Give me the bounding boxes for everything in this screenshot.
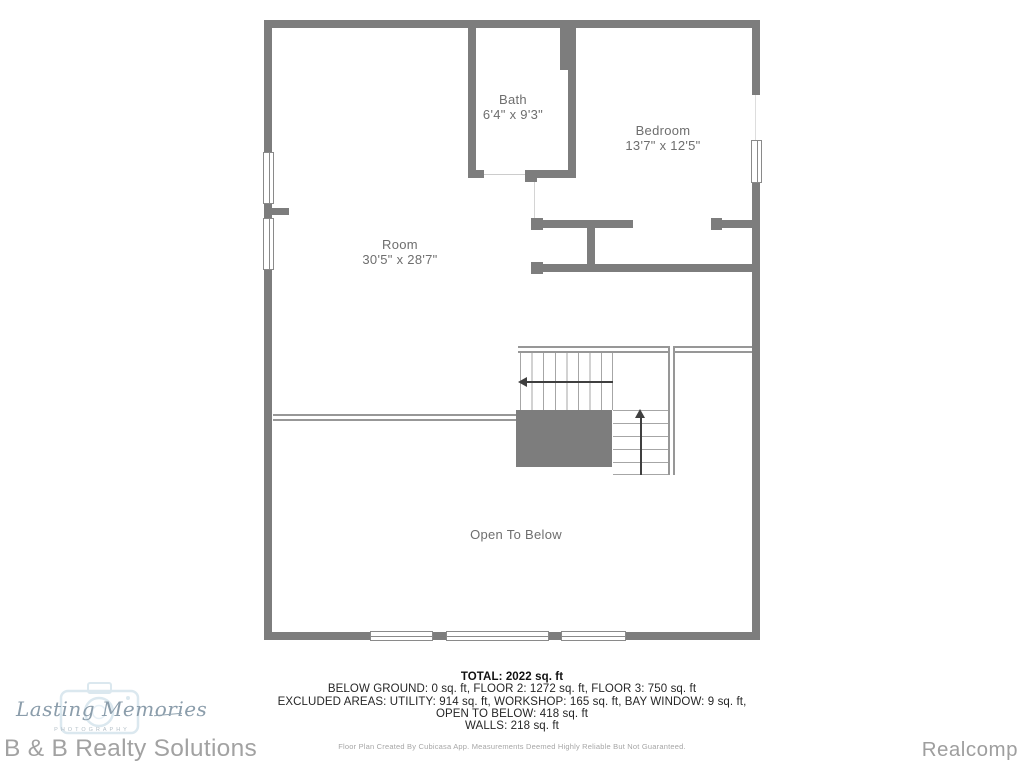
wall-hall-lower-cap xyxy=(531,262,543,274)
stair-rail-right xyxy=(668,346,675,475)
window-bottom-center xyxy=(446,631,549,641)
window-bottom-left xyxy=(370,631,433,641)
room-label-bath: Bath 6'4" x 9'3" xyxy=(483,92,543,122)
window-pane xyxy=(757,141,758,182)
wall-bath-left-foot xyxy=(468,170,484,178)
wall-bedroom-stub-cap xyxy=(711,218,722,230)
window-pane xyxy=(269,219,270,269)
wall-hall-upper xyxy=(533,220,633,228)
floor-plan: Bath 6'4" x 9'3" Bedroom 13'7" x 12'5" R… xyxy=(0,0,1024,768)
open-to-below-label: Open To Below xyxy=(470,527,562,542)
stair-rail-top xyxy=(518,346,752,353)
brokerage-name: B & B Realty Solutions xyxy=(4,735,257,763)
bath-door-threshold xyxy=(484,174,525,175)
wall-hall-vertical xyxy=(587,228,595,265)
window-pane xyxy=(371,636,432,637)
wall-right-opening-line xyxy=(755,95,756,141)
window-right xyxy=(751,140,762,183)
stair-rail-left xyxy=(273,414,516,421)
wall-bath-bottom-cap xyxy=(525,170,537,182)
window-pane xyxy=(562,636,625,637)
summary-breakdown: BELOW GROUND: 0 sq. ft, FLOOR 2: 1272 sq… xyxy=(0,683,1024,695)
photographer-logo-script: Lasting Memories xyxy=(16,697,176,721)
room-label-room: Room 30'5" x 28'7" xyxy=(362,237,437,267)
window-pane xyxy=(447,636,548,637)
wall-outer-top xyxy=(264,20,760,28)
photographer-logo-subtext: PHOTOGRAPHY xyxy=(16,727,168,733)
summary-total: TOTAL: 2022 sq. ft xyxy=(0,671,1024,683)
bedroom-doorway-line xyxy=(534,182,535,220)
stair-arrow-up-line xyxy=(640,417,642,475)
stair-landing xyxy=(516,410,612,467)
wall-hall-lower xyxy=(533,264,752,272)
wall-hall-upper-cap xyxy=(531,218,543,230)
room-label-bedroom: Bedroom 13'7" x 12'5" xyxy=(625,123,700,153)
window-bottom-right xyxy=(561,631,626,641)
room-name: Room xyxy=(362,237,437,252)
room-name: Bath xyxy=(483,92,543,107)
wall-bath-right xyxy=(568,70,576,170)
room-dimensions: 13'7" x 12'5" xyxy=(625,138,700,153)
room-dimensions: 30'5" x 28'7" xyxy=(362,252,437,267)
window-left-lower xyxy=(263,218,274,270)
window-pane xyxy=(269,153,270,203)
wall-bath-left xyxy=(468,28,476,170)
wall-outer-left xyxy=(264,20,272,640)
room-dimensions: 6'4" x 9'3" xyxy=(483,107,543,122)
room-name: Bedroom xyxy=(625,123,700,138)
stair-arrow-up-head xyxy=(635,409,645,418)
wall-right-opening xyxy=(751,95,761,141)
mls-watermark: Realcomp xyxy=(922,738,1018,762)
stair-arrow-left-line xyxy=(526,381,613,383)
wall-bath-chimney xyxy=(560,28,576,70)
window-left-upper xyxy=(263,152,274,204)
stair-arrow-left-head xyxy=(518,377,527,387)
wall-left-stub xyxy=(272,208,289,215)
